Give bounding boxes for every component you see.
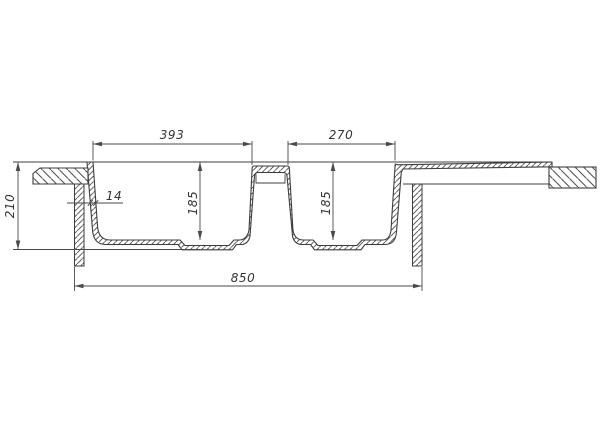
dim-label-right-bowl-width: 270: [329, 128, 353, 142]
dim-label-overall-width: 850: [231, 271, 255, 285]
left-countertop-section: [33, 168, 88, 184]
dim-label-rim-wall-thickness: 14: [106, 189, 122, 203]
right-countertop-section: [403, 167, 596, 188]
drawing-canvas: 393 270 185 185 210 14 850: [0, 0, 600, 424]
dim-393-lines: [93, 141, 252, 165]
dim-label-right-bowl-depth: 185: [319, 191, 333, 215]
dim-label-left-bowl-width: 393: [160, 128, 184, 142]
divider-groove-line: [256, 175, 285, 184]
dim-label-left-bowl-depth: 185: [186, 191, 200, 215]
right-flange-bar: [413, 184, 423, 266]
left-flange-bar: [75, 184, 85, 266]
dim-label-overall-height: 210: [3, 194, 17, 218]
dim-270-lines: [288, 141, 395, 165]
sink-section-drawing: [0, 0, 600, 424]
